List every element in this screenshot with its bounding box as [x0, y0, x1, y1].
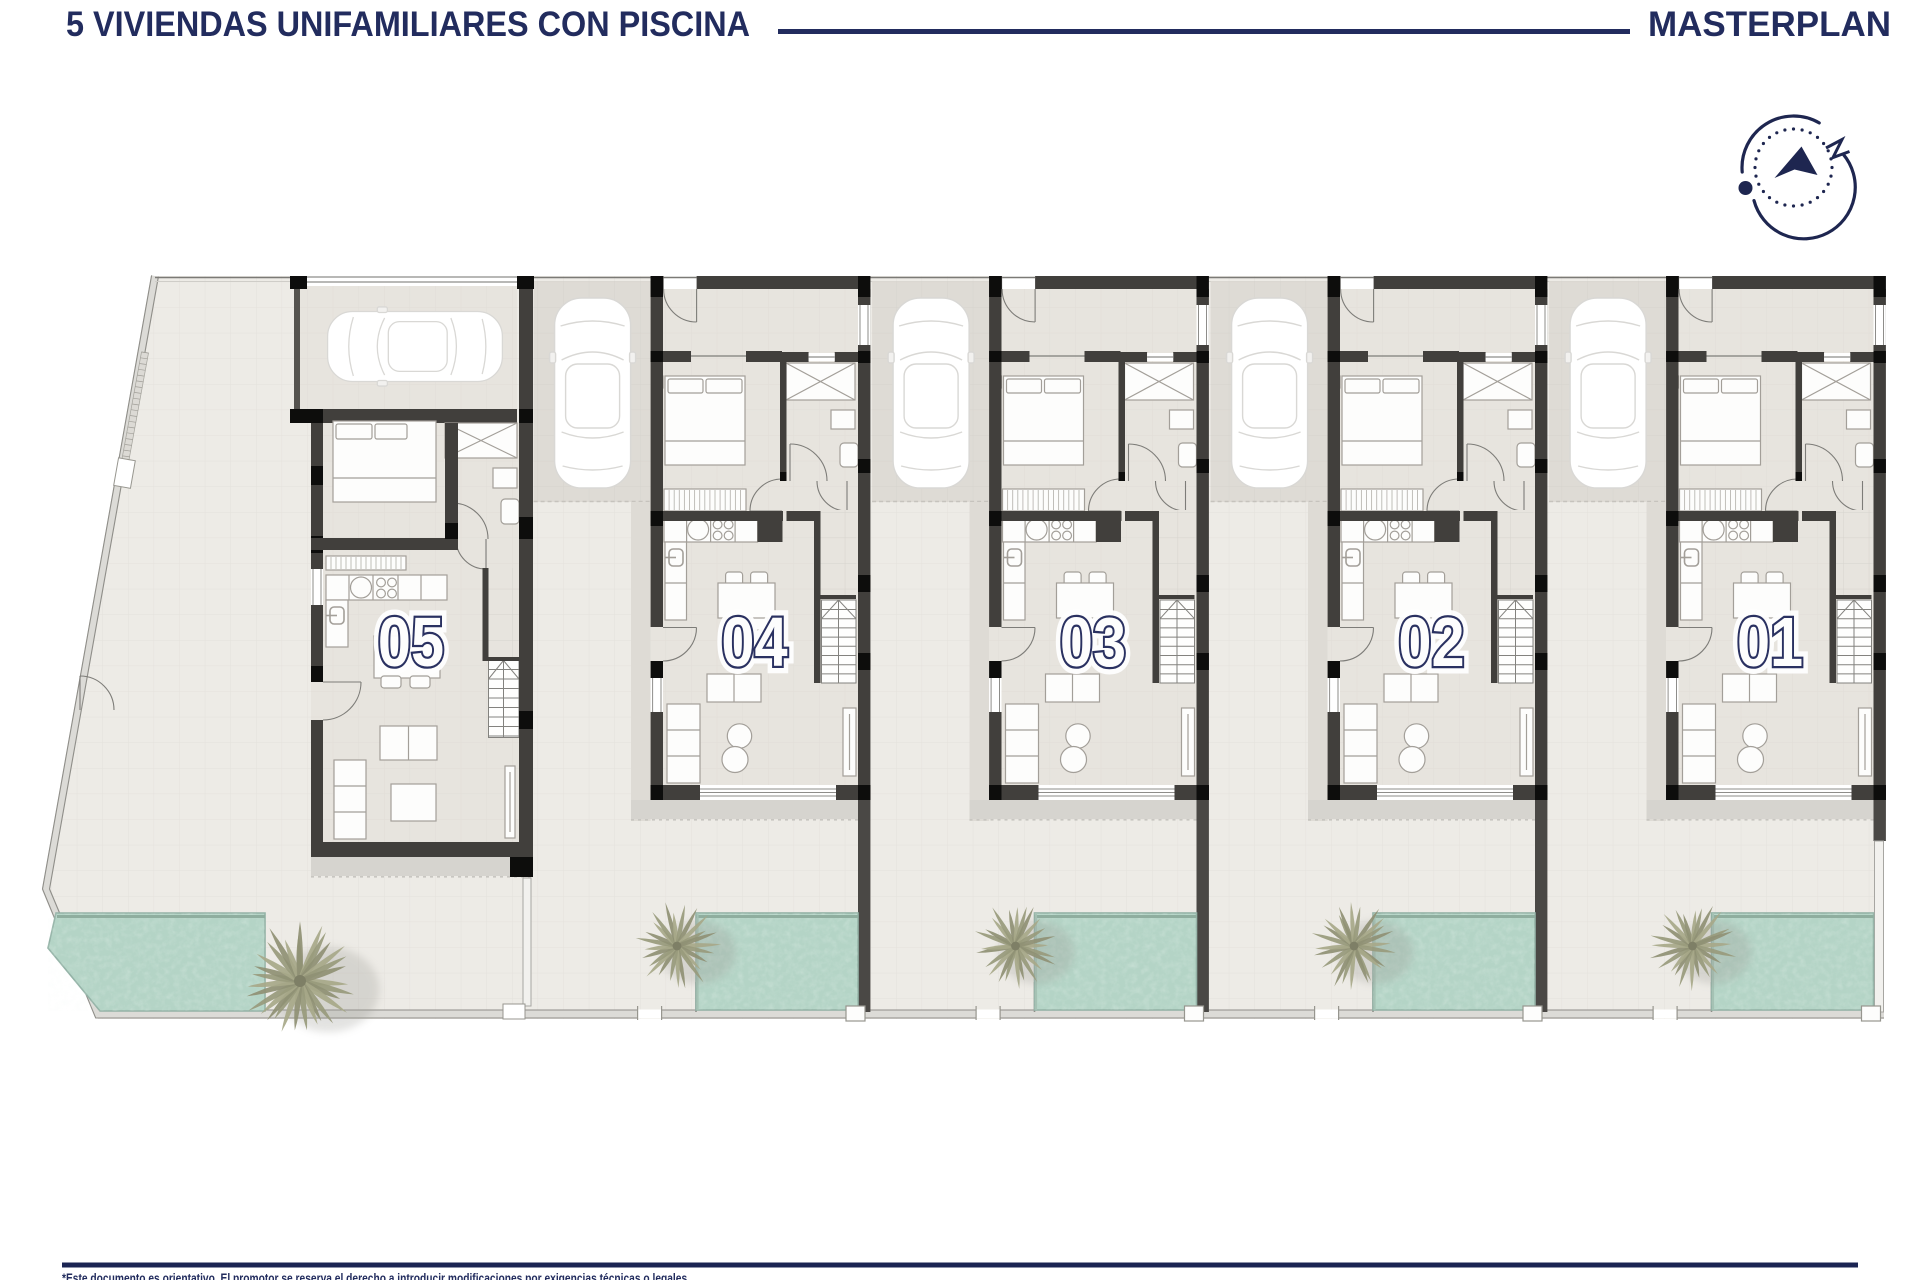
svg-text:*Este documento es orientativo: *Este documento es orientativo. El promo… [62, 1272, 690, 1280]
svg-text:02: 02 [1398, 602, 1464, 681]
svg-text:04: 04 [721, 602, 787, 681]
svg-text:05: 05 [378, 602, 444, 681]
svg-text:5 VIVIENDAS UNIFAMILIARES CON: 5 VIVIENDAS UNIFAMILIARES CON PISCINA [66, 5, 750, 44]
svg-text:MASTERPLAN: MASTERPLAN [1648, 5, 1891, 44]
svg-text:01: 01 [1737, 602, 1803, 681]
svg-text:03: 03 [1060, 602, 1126, 681]
